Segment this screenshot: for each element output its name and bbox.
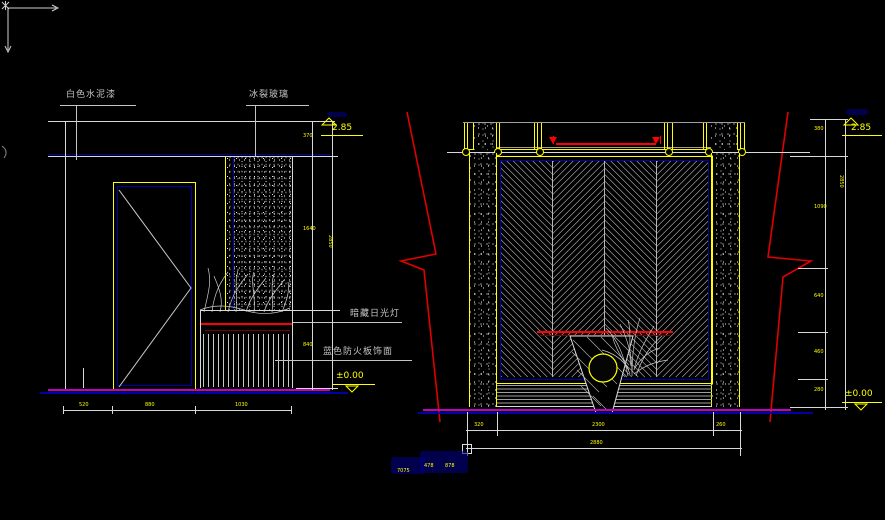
red-arrow-icon	[652, 137, 660, 144]
dim-text[interactable]: 460	[814, 350, 824, 355]
stone-pillar-right[interactable]	[711, 153, 740, 407]
ext-tick	[798, 268, 828, 269]
ceiling-stud	[737, 123, 738, 150]
ceiling-light-red-line	[556, 143, 656, 145]
break-line-left	[0, 0, 885, 520]
ext-line	[713, 412, 714, 436]
ceiling-stud	[703, 123, 704, 150]
dim-line-overall	[466, 448, 742, 449]
blue-text-smudge	[846, 109, 868, 115]
ceiling-stud	[664, 123, 665, 150]
stray-dim-text[interactable]: 878	[445, 464, 455, 469]
ceiling-stud	[667, 123, 668, 150]
ext-tick	[790, 156, 848, 157]
ceiling-stud	[740, 123, 741, 150]
elevation-top-value[interactable]: 2.85	[851, 124, 871, 133]
dim-text[interactable]: 2300	[592, 423, 605, 428]
light-lead	[660, 136, 661, 144]
ceiling-stud	[534, 123, 535, 150]
dim-overall-line	[845, 119, 846, 410]
ext-line	[740, 412, 741, 456]
dim-text[interactable]: 1090	[814, 205, 827, 210]
ceiling-stud	[537, 123, 538, 150]
plant-sketch	[588, 306, 672, 380]
dim-text[interactable]: 320	[474, 423, 484, 428]
elevation-underline	[842, 135, 882, 136]
panel-hatch	[501, 161, 552, 377]
ceiling-stud	[744, 123, 745, 150]
panel-divider	[552, 161, 553, 377]
elevation-triangle-down-icon	[854, 403, 868, 411]
blue-text-smudge	[420, 451, 468, 473]
floor-magenta-line	[423, 409, 791, 411]
dim-text[interactable]: 260	[716, 423, 726, 428]
red-arrow-icon	[549, 137, 557, 144]
dim-chain-line	[825, 119, 826, 410]
dim-text[interactable]: 380	[814, 127, 824, 132]
ceiling-inner-line	[495, 147, 738, 148]
stray-dim-text[interactable]: 7075	[397, 469, 410, 474]
dim-text[interactable]: 280	[814, 388, 824, 393]
ceiling-stud	[496, 123, 497, 150]
stone-pillar-left[interactable]	[469, 153, 497, 407]
dim-overall-text[interactable]: 2880	[590, 441, 603, 446]
dim-line-bottom	[466, 430, 742, 431]
ceiling-stud	[672, 123, 673, 150]
elevation-bottom-value[interactable]: ±0.00	[845, 390, 873, 399]
ceiling-stud	[464, 123, 465, 150]
stray-dim-text[interactable]: 478	[424, 464, 434, 469]
dim-overall-text[interactable]: 2850	[838, 175, 843, 188]
ceiling-stone-block	[711, 123, 737, 150]
dim-text[interactable]: 640	[814, 294, 824, 299]
cad-canvas[interactable]: 白色水泥漆 冰裂玻璃	[0, 0, 885, 520]
ceiling-stud	[541, 123, 542, 150]
fixture-circle-icon	[536, 148, 544, 156]
ceiling-stud	[706, 123, 707, 150]
ceiling-stud	[499, 123, 500, 150]
ext-line	[497, 412, 498, 436]
ext-tick	[798, 379, 828, 380]
ext-tick	[798, 332, 828, 333]
ceiling-stone-block	[474, 123, 496, 150]
ceiling-stud	[467, 123, 468, 150]
ext-tick	[790, 407, 848, 408]
fixture-circle-icon	[665, 148, 673, 156]
floor-blue-line	[418, 412, 813, 414]
